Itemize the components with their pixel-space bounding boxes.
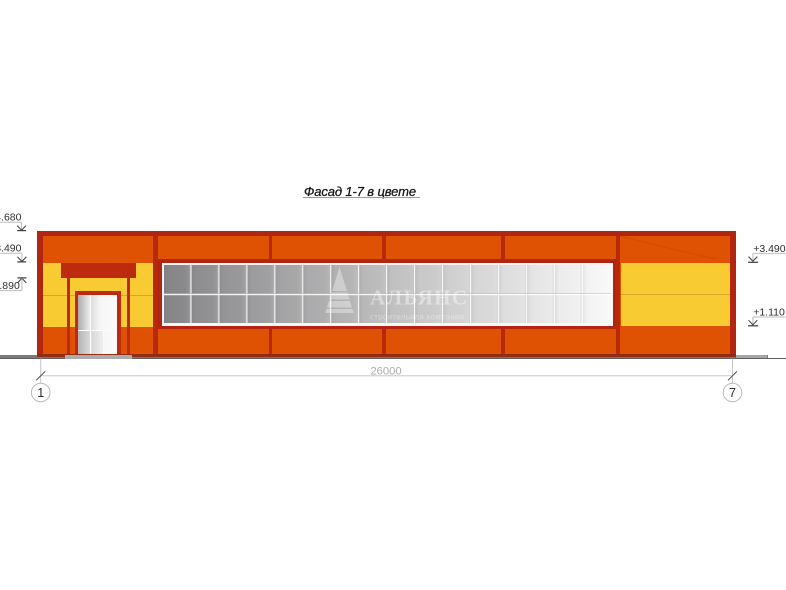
svg-text:1: 1 (37, 386, 44, 400)
svg-text:26000: 26000 (370, 366, 401, 378)
svg-text:+1.890: +1.890 (0, 280, 20, 292)
svg-text:+4.680: +4.680 (0, 211, 22, 223)
svg-text:7: 7 (729, 386, 736, 400)
svg-text:+3.490: +3.490 (0, 242, 22, 254)
